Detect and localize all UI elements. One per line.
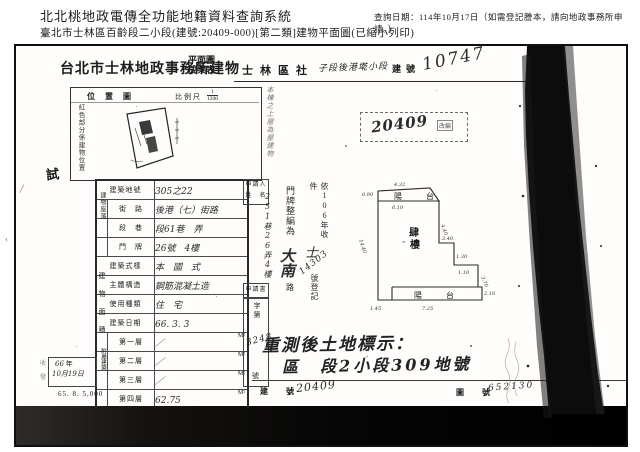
- dim-step1: 1.30: [456, 254, 468, 260]
- building-number-label: 建號: [392, 62, 420, 75]
- floor-label-tick: =: [402, 240, 406, 246]
- table-row: 段 巷段61巷 弄: [96, 219, 248, 238]
- district-handwritten: 子段後港墘小段: [318, 59, 388, 74]
- dispatch-mark: 發: [40, 372, 46, 381]
- location-map-header: 位置圖 比例尺 1 1200: [71, 88, 259, 103]
- doorplate-stamp-text: 門牌整編為: [284, 186, 297, 248]
- unit-label: M²: [238, 390, 245, 396]
- bottom-building-no-hand: 20409: [295, 378, 336, 395]
- side-label-area: 建物面積: [96, 272, 105, 344]
- scale-fraction: 1 1200: [207, 89, 218, 102]
- row-value: ／M²: [155, 352, 249, 371]
- row-value: 本 國 式: [155, 257, 249, 276]
- scan-margin-mark: 〳: [18, 182, 27, 195]
- district-printed: 士林區社: [242, 62, 314, 78]
- result-sheet-title: 平面圖 成果表: [188, 55, 215, 75]
- dim-left: 14.40: [357, 239, 367, 255]
- applicant-label-1: 申請人: [244, 180, 268, 191]
- check-stamp-glyph: 試: [45, 163, 60, 183]
- balcony-strip-lines: [392, 287, 478, 300]
- table-row: 地平面騎樓／M²: [96, 447, 248, 448]
- table-row: 第二層／M²: [96, 352, 248, 371]
- row-label: 第一層: [108, 333, 155, 352]
- side-gutter-cell: [96, 447, 108, 448]
- row-label: 地平面騎樓: [108, 447, 155, 448]
- table-row: 第三層／M²: [96, 371, 248, 390]
- location-map-title: 位置圖: [87, 91, 141, 102]
- balcony-bottom-right-char: 台: [446, 290, 454, 300]
- resurvey-line2: 區 段2小段309地號: [282, 350, 472, 377]
- side-gutter-cell: [96, 238, 108, 257]
- receipt-stamp-bottom: 號登記: [309, 274, 320, 308]
- document-subtitle: 臺北市士林區百齡段二小段(建號:20409-000)[第二類]建物平面圖(已縮小…: [40, 25, 414, 40]
- dim-bottom-left: 1.45: [370, 306, 381, 312]
- row-value: 後港（七）街路: [155, 200, 249, 219]
- title-result: 成果表: [188, 65, 215, 75]
- system-title: 北北桃地政電傳全功能地籍資料查詢系統: [40, 6, 292, 25]
- row-label: 第三層: [108, 371, 155, 390]
- row-value: 305之22: [155, 180, 249, 200]
- table-row: 建築式樣本 國 式: [96, 257, 248, 276]
- side-gutter-cell: [96, 371, 108, 390]
- table-row: 建築地號305之22: [96, 180, 248, 200]
- title-underline: [234, 81, 528, 82]
- renumber-stamp: 改編: [437, 120, 453, 131]
- ref-prefix: 字第: [252, 302, 262, 320]
- floor-label-char2: 樓: [410, 238, 420, 251]
- receipt-stamp-top: 依106年收件: [308, 182, 330, 244]
- street-name-handwritten: 大南: [277, 248, 298, 282]
- table-row: 主體構造鋼筋混凝土造: [96, 276, 248, 295]
- table-row: 門 牌26號 4樓: [96, 238, 248, 257]
- row-value: ／M²: [155, 333, 249, 352]
- row-label: 第二層: [108, 352, 155, 371]
- side-gutter-cell: [96, 219, 108, 238]
- renumber-dashed-box: 20409 改編: [360, 112, 468, 142]
- floor-outline: [378, 201, 482, 300]
- dim-bottom: 7.25: [422, 306, 433, 312]
- table-row: 使用種類住 宅: [96, 295, 248, 314]
- floor-label-char1: 肆: [409, 226, 419, 239]
- dim-balcony-under: 6.10: [392, 205, 404, 211]
- date-month-day-hand: 10月19日: [49, 369, 96, 379]
- receive-mark: 收: [40, 358, 46, 367]
- side-label-annex: 附屬建築: [96, 348, 105, 370]
- date-year-label: 年: [66, 360, 73, 368]
- new-address-column: 251巷26弄4樓: [262, 192, 273, 296]
- table-row: 建築日期66. 3. 3: [96, 314, 248, 333]
- dim-strip-right: 2.10: [483, 291, 496, 297]
- table-row: 街 路後港（七）街路: [96, 200, 248, 219]
- row-value: ／M²: [155, 371, 249, 390]
- dim-step2: 1.10: [458, 270, 470, 276]
- scale-numerator: 1: [207, 89, 218, 96]
- scan-artifact-bottom-band: [16, 406, 626, 445]
- scale-denominator: 1200: [207, 96, 218, 102]
- location-map-box: 位置圖 比例尺 1 1200 紅色部分係建物位置: [70, 87, 262, 181]
- table-row: 第一層／M²: [96, 333, 248, 352]
- building-number-handwritten: 10747: [421, 44, 488, 75]
- dim-right-upper: 4.40: [439, 223, 449, 237]
- row-value: 住 宅: [155, 295, 249, 314]
- sheet-no-hand: 652130: [488, 380, 535, 393]
- dim-top: 4.32: [393, 182, 405, 188]
- street-suffix: 路: [286, 282, 294, 293]
- receive-date-box: 66 年 10月19日: [48, 357, 97, 387]
- floor-plan-drawing: 4.32 0.90 6.10 4.40 2.40 1.30 1.10 3.70 …: [342, 178, 542, 322]
- red-area-note: 紅色部分係建物位置: [75, 104, 85, 178]
- row-value: 鋼筋混凝土造: [155, 276, 249, 295]
- title-plan: 平面圖: [188, 55, 215, 65]
- row-value: 26號 4樓: [155, 238, 249, 257]
- page-margin-mark: ‹: [5, 234, 8, 244]
- side-label-location: 建物座落: [96, 192, 105, 220]
- dim-right-mid: 2.40: [441, 236, 454, 242]
- row-label: 街 路: [108, 200, 155, 219]
- renumber-handwritten: 20409: [370, 112, 429, 137]
- form-print-code: 65. 8. 5,000: [58, 390, 103, 398]
- row-value: 66. 3. 3: [155, 314, 249, 333]
- row-value: 段61巷 弄: [155, 219, 249, 238]
- side-annotation: 本棟之上層為屋建物: [265, 86, 275, 182]
- query-result-page: 北北桃地政電傳全功能地籍資料查詢系統 查詢日期：114年10月17日（如需登記謄…: [0, 0, 640, 452]
- bottom-building-no-label: 建 號: [260, 386, 299, 397]
- balcony-top-label: 陽 台: [394, 191, 442, 201]
- location-sketch: [113, 104, 189, 178]
- balcony-bottom-left-char: 陽: [414, 291, 422, 300]
- scanned-plan-document: 台北市士林地政事務所建物 平面圖 成果表 士林區社 子段後港墘小段 建號 107…: [14, 44, 628, 447]
- row-label: 段 巷: [108, 219, 155, 238]
- row-value: ／M²: [155, 447, 249, 448]
- row-label: 門 牌: [108, 238, 155, 257]
- scale-label: 比例尺: [175, 92, 202, 102]
- dim-balcony-left: 0.90: [362, 192, 374, 198]
- date-year-hand: 66: [55, 360, 64, 368]
